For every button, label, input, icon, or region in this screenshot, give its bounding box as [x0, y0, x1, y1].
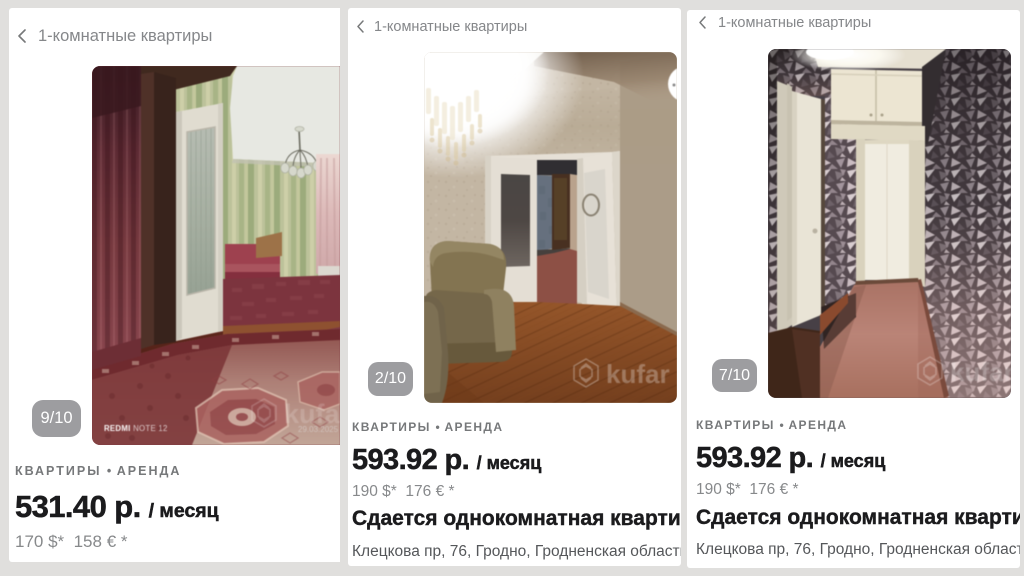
- svg-text:kufar: kufar: [606, 359, 670, 389]
- svg-text:REDMI NOTE 12: REDMI NOTE 12: [104, 424, 168, 433]
- svg-text:29.03.2025: 29.03.2025: [298, 425, 339, 434]
- svg-text:kufar: kufar: [950, 357, 1011, 387]
